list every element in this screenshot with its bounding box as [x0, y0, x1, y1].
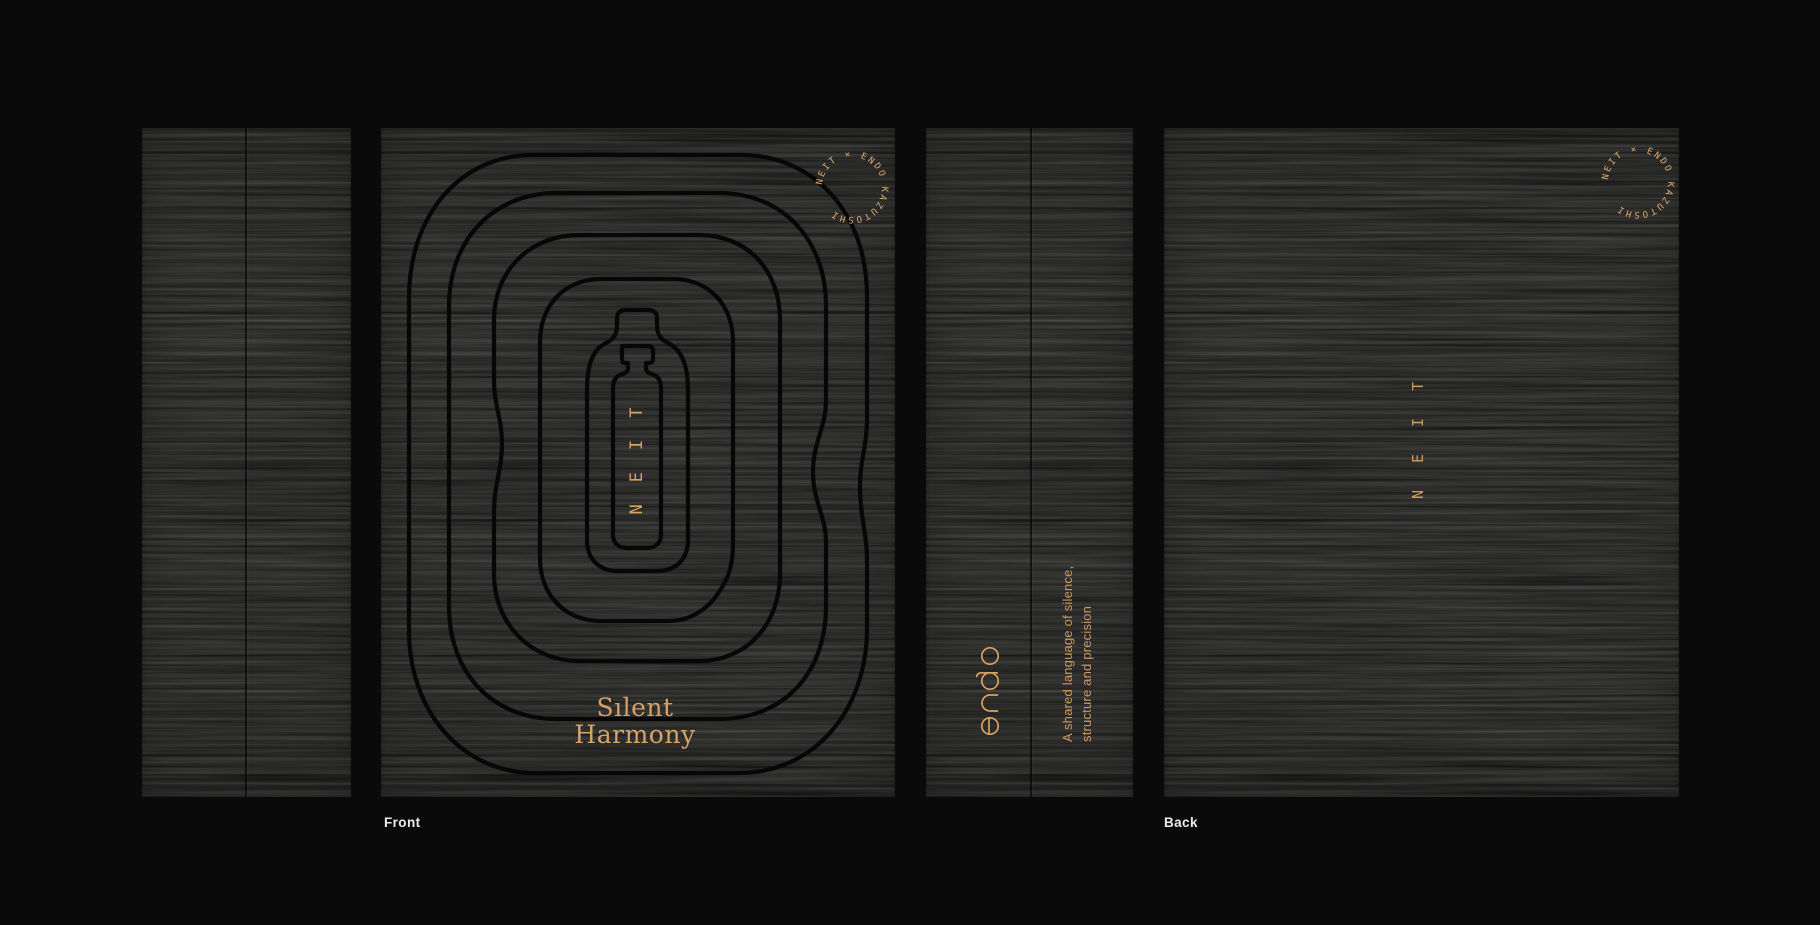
fold-crease-line [245, 128, 247, 797]
packaging-mockup-stage: NEIT × ENDO KAZUTOSHI NEIT Sılent Harmon… [0, 0, 1820, 925]
endo-logo [976, 645, 1002, 737]
fold-crease-line [1030, 128, 1032, 797]
endo-letter-n [982, 695, 998, 711]
spine-tagline-line1: A shared language of silence, [1058, 566, 1077, 742]
product-title-line1: Sılent [381, 694, 889, 721]
endo-letter-d-bowl [982, 673, 998, 689]
endo-letter-e-bowl [982, 718, 998, 734]
back-wordmark: NEIT [1408, 386, 1428, 526]
endo-logo-wrap [976, 645, 1002, 737]
spine-tagline-line2: structure and precision [1077, 566, 1096, 742]
spine-tagline: A shared language of silence, structure … [1058, 566, 1098, 742]
collab-badge: NEIT × ENDO KAZUTOSHI [1596, 140, 1679, 224]
collab-badge-text: NEIT × ENDO KAZUTOSHI [815, 150, 889, 224]
product-title-line2: Harmony [381, 721, 889, 748]
collab-badge-text: NEIT × ENDO KAZUTOSHI [1601, 145, 1675, 219]
panel-back: NEIT × ENDO KAZUTOSHI NEIT [1164, 128, 1679, 797]
svg-text:NEIT × ENDO KAZUTOSHI: NEIT × ENDO KAZUTOSHI [815, 150, 889, 224]
panel-front: NEIT × ENDO KAZUTOSHI NEIT Sılent Harmon… [381, 128, 895, 797]
collab-badge: NEIT × ENDO KAZUTOSHI [810, 145, 894, 229]
front-bottle-wordmark: NEIT [626, 376, 648, 546]
panel-spine-endo: A shared language of silence, structure … [926, 128, 1133, 797]
caption-front: Front [384, 815, 421, 830]
panel-spine-left [142, 128, 351, 797]
product-title: Sılent Harmony [381, 694, 889, 748]
endo-letter-o [982, 648, 998, 664]
caption-back: Back [1164, 815, 1198, 830]
svg-text:NEIT × ENDO KAZUTOSHI: NEIT × ENDO KAZUTOSHI [1601, 145, 1675, 219]
